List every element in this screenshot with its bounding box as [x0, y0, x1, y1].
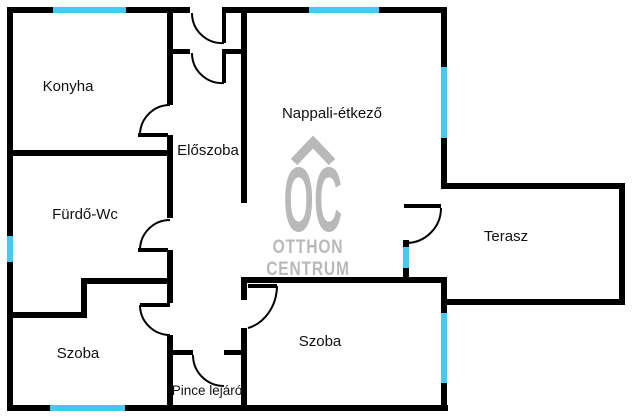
- door-arc: [140, 105, 170, 135]
- wall-segment: [403, 268, 409, 277]
- wall-segment: [224, 350, 242, 355]
- wall-segment: [167, 135, 173, 218]
- door-arc: [140, 220, 170, 250]
- window: [50, 405, 125, 411]
- window: [7, 236, 13, 262]
- wall-segment: [167, 335, 173, 411]
- wall-segment: [7, 7, 53, 13]
- wall-segment: [379, 7, 447, 13]
- wall-segment: [7, 150, 173, 156]
- logo-line1: OTTHON: [273, 236, 344, 258]
- room-label-nappali: Nappali-étkező: [282, 105, 382, 122]
- door-leaf: [222, 53, 226, 83]
- room-label-eloszoba: Előszoba: [177, 142, 239, 159]
- room-label-terasz: Terasz: [484, 228, 528, 245]
- door-leaf: [222, 13, 226, 43]
- wall-segment: [441, 299, 625, 305]
- window: [441, 313, 447, 383]
- window: [53, 7, 126, 13]
- door-leaf: [140, 303, 170, 307]
- watermark-logo: OC OTTHON CENTRUM: [266, 142, 350, 279]
- door-arc: [192, 53, 224, 83]
- wall-segment: [241, 283, 247, 300]
- door-arc: [140, 305, 170, 335]
- room-label-furdo: Fürdő-Wc: [52, 206, 118, 223]
- floorplan: OC OTTHON CENTRUM Konyha Előszoba Nappal…: [0, 0, 632, 418]
- room-label-szoba-bal: Szoba: [57, 345, 100, 362]
- door-arc: [406, 208, 441, 243]
- door-arc: [248, 286, 277, 328]
- wall-segment: [81, 278, 173, 284]
- wall-segment: [7, 7, 13, 411]
- wall-segment: [126, 7, 190, 13]
- door-leaf: [248, 284, 277, 288]
- wall-segment: [167, 13, 173, 105]
- room-label-szoba-jobb: Szoba: [299, 333, 342, 350]
- window: [403, 247, 409, 268]
- wall-segment: [173, 49, 190, 54]
- door-arc: [193, 355, 224, 386]
- window: [441, 67, 447, 138]
- door-leaf: [404, 204, 441, 208]
- door-leaf: [138, 133, 168, 137]
- logo-line2: CENTRUM: [266, 258, 350, 280]
- wall-segment: [167, 250, 173, 303]
- window: [309, 7, 379, 13]
- floorplan-drawing: OC OTTHON CENTRUM Konyha Előszoba Nappal…: [0, 0, 632, 418]
- wall-segment: [441, 183, 625, 189]
- wall-segment: [222, 7, 309, 13]
- room-label-konyha: Konyha: [43, 78, 95, 95]
- door-arc: [192, 13, 224, 43]
- room-label-pince: Pince lejáró: [172, 383, 243, 398]
- wall-segment: [241, 7, 247, 203]
- wall-segment: [7, 312, 87, 318]
- wall-segment: [173, 350, 193, 355]
- door-leaf: [138, 248, 168, 252]
- wall-segment: [619, 183, 625, 305]
